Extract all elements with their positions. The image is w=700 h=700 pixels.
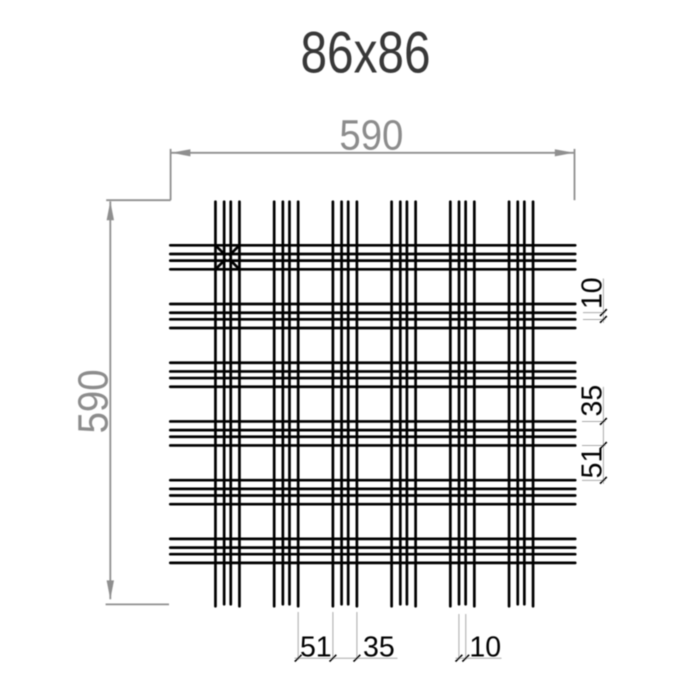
svg-text:51: 51 bbox=[576, 447, 608, 479]
svg-text:590: 590 bbox=[69, 369, 117, 433]
svg-text:10: 10 bbox=[576, 277, 608, 309]
svg-text:590: 590 bbox=[339, 112, 403, 160]
svg-text:35: 35 bbox=[363, 631, 395, 663]
svg-text:35: 35 bbox=[576, 385, 608, 417]
svg-text:10: 10 bbox=[469, 631, 501, 663]
svg-text:86x86: 86x86 bbox=[301, 21, 431, 86]
svg-text:51: 51 bbox=[300, 631, 332, 663]
